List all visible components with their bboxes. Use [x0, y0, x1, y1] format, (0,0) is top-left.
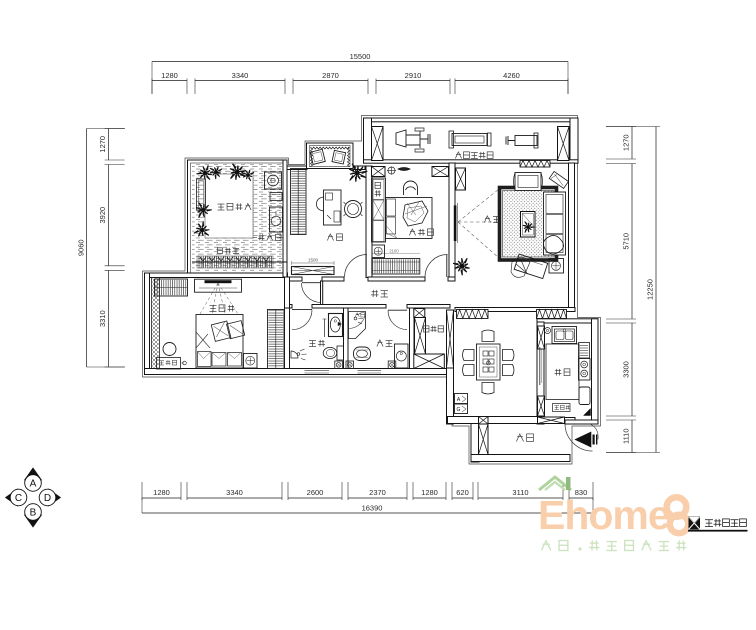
svg-text:3300: 3300 — [622, 361, 631, 378]
svg-text:C: C — [15, 493, 22, 504]
svg-text:1270: 1270 — [622, 134, 631, 151]
svg-text:9060: 9060 — [77, 239, 86, 256]
svg-text:1280: 1280 — [153, 488, 170, 497]
svg-text:16390: 16390 — [362, 504, 383, 513]
svg-text:3310: 3310 — [98, 310, 107, 327]
svg-text:B: B — [30, 508, 37, 519]
svg-text:2600: 2600 — [307, 488, 324, 497]
svg-text:5710: 5710 — [622, 233, 631, 250]
svg-text:2100: 2100 — [389, 249, 399, 254]
svg-text:A: A — [30, 479, 37, 490]
svg-text:2370: 2370 — [369, 488, 386, 497]
svg-text:4260: 4260 — [503, 71, 520, 80]
svg-text:D: D — [44, 493, 51, 504]
svg-text:3920: 3920 — [98, 207, 107, 224]
svg-text:1500: 1500 — [308, 258, 319, 263]
svg-text:G: G — [457, 407, 461, 413]
svg-text:1280: 1280 — [421, 488, 438, 497]
svg-text:1270: 1270 — [98, 136, 107, 153]
svg-text:2870: 2870 — [322, 71, 339, 80]
svg-text:15500: 15500 — [350, 52, 371, 61]
svg-text:1280: 1280 — [161, 71, 178, 80]
svg-text:3110: 3110 — [512, 488, 528, 497]
svg-text:3340: 3340 — [232, 71, 249, 80]
svg-text:620: 620 — [456, 488, 469, 497]
svg-text:Ehome: Ehome — [538, 492, 670, 538]
svg-text:1110: 1110 — [622, 428, 631, 444]
svg-text:2910: 2910 — [405, 71, 422, 80]
svg-text:3340: 3340 — [226, 488, 243, 497]
svg-text:12250: 12250 — [646, 279, 655, 300]
